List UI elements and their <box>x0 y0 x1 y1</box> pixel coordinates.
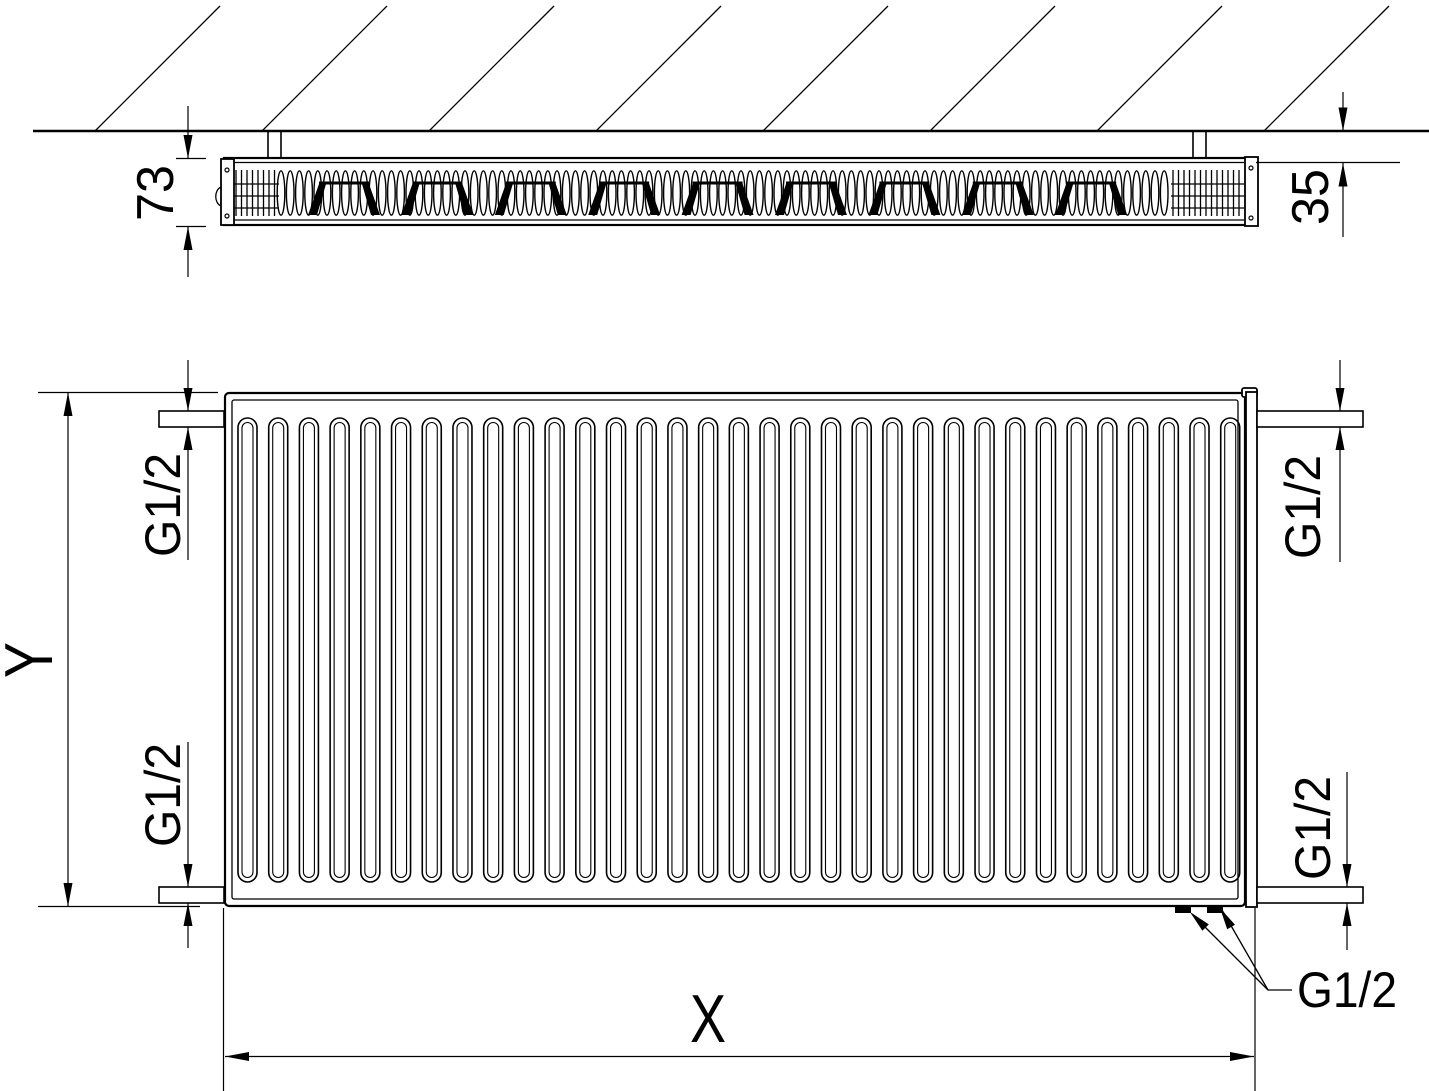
side-panel-edge <box>1246 392 1257 907</box>
arrow-up-icon <box>1336 427 1345 450</box>
thread-label: G1/2 <box>135 453 191 557</box>
hatch-line <box>763 6 888 131</box>
arrow-up-icon <box>184 227 193 251</box>
arrow-down-icon <box>64 883 73 907</box>
thread-label: G1/2 <box>1285 776 1341 880</box>
arrow-up-icon <box>64 393 73 417</box>
radiator-technical-drawing: 73 35 Y <box>0 0 1429 1091</box>
arrow-down-icon <box>1343 864 1352 887</box>
top-view <box>216 132 1258 226</box>
height-label: Y <box>0 642 67 678</box>
hatch-line <box>429 6 554 131</box>
arrow-down-icon <box>184 388 193 411</box>
bottom-port-1 <box>1175 906 1191 913</box>
dimension-thread-bottom-left: G1/2 <box>135 742 193 948</box>
end-cap-right <box>1245 157 1258 226</box>
arrow-down-icon <box>184 864 193 887</box>
end-cap-left <box>216 159 234 225</box>
dimension-thread-top-right: G1/2 <box>1275 360 1345 562</box>
depth-value: 73 <box>127 165 185 221</box>
dimension-thread-bottom-right: G1/2 <box>1285 772 1352 950</box>
front-view <box>159 388 1363 913</box>
mounting-bracket-left <box>268 132 281 157</box>
hatch-line <box>1097 6 1222 131</box>
connection-stub-top-left <box>159 411 224 427</box>
connection-stub-top-right <box>1257 411 1363 427</box>
dimension-width-X: X <box>224 908 1256 1091</box>
connection-stub-bottom-right <box>1257 887 1363 903</box>
arrow-down-icon <box>184 135 193 159</box>
thread-label: G1/2 <box>1297 962 1397 1018</box>
hatch-line <box>95 6 220 131</box>
front-panel-outline <box>225 393 1245 906</box>
wall-section <box>33 6 1429 131</box>
leader-arrow-icon <box>1220 908 1235 929</box>
hatch-line <box>930 6 1055 131</box>
arrow-down-icon <box>1336 388 1345 411</box>
arrow-up-icon <box>184 427 193 450</box>
thread-label: G1/2 <box>135 743 191 847</box>
arrow-right-icon <box>1230 1052 1254 1061</box>
wall-gap-value: 35 <box>1282 169 1340 225</box>
hatch-line <box>262 6 387 131</box>
thread-label: G1/2 <box>1275 455 1331 559</box>
arrow-up-icon <box>1343 903 1352 926</box>
wall-hatching <box>95 6 1389 131</box>
arrow-down-icon <box>1339 108 1348 132</box>
width-label: X <box>690 981 726 1057</box>
dimension-wall-gap-35: 35 <box>1256 92 1400 237</box>
leader-thread-bottom-ports: G1/2 <box>1190 908 1397 1018</box>
hatch-line <box>596 6 721 131</box>
hatch-line <box>1264 6 1389 131</box>
mounting-bracket-right <box>1193 132 1206 157</box>
connection-stub-bottom-left <box>159 887 224 903</box>
arrow-left-icon <box>225 1052 249 1061</box>
dimension-thread-top-left: G1/2 <box>135 360 193 560</box>
